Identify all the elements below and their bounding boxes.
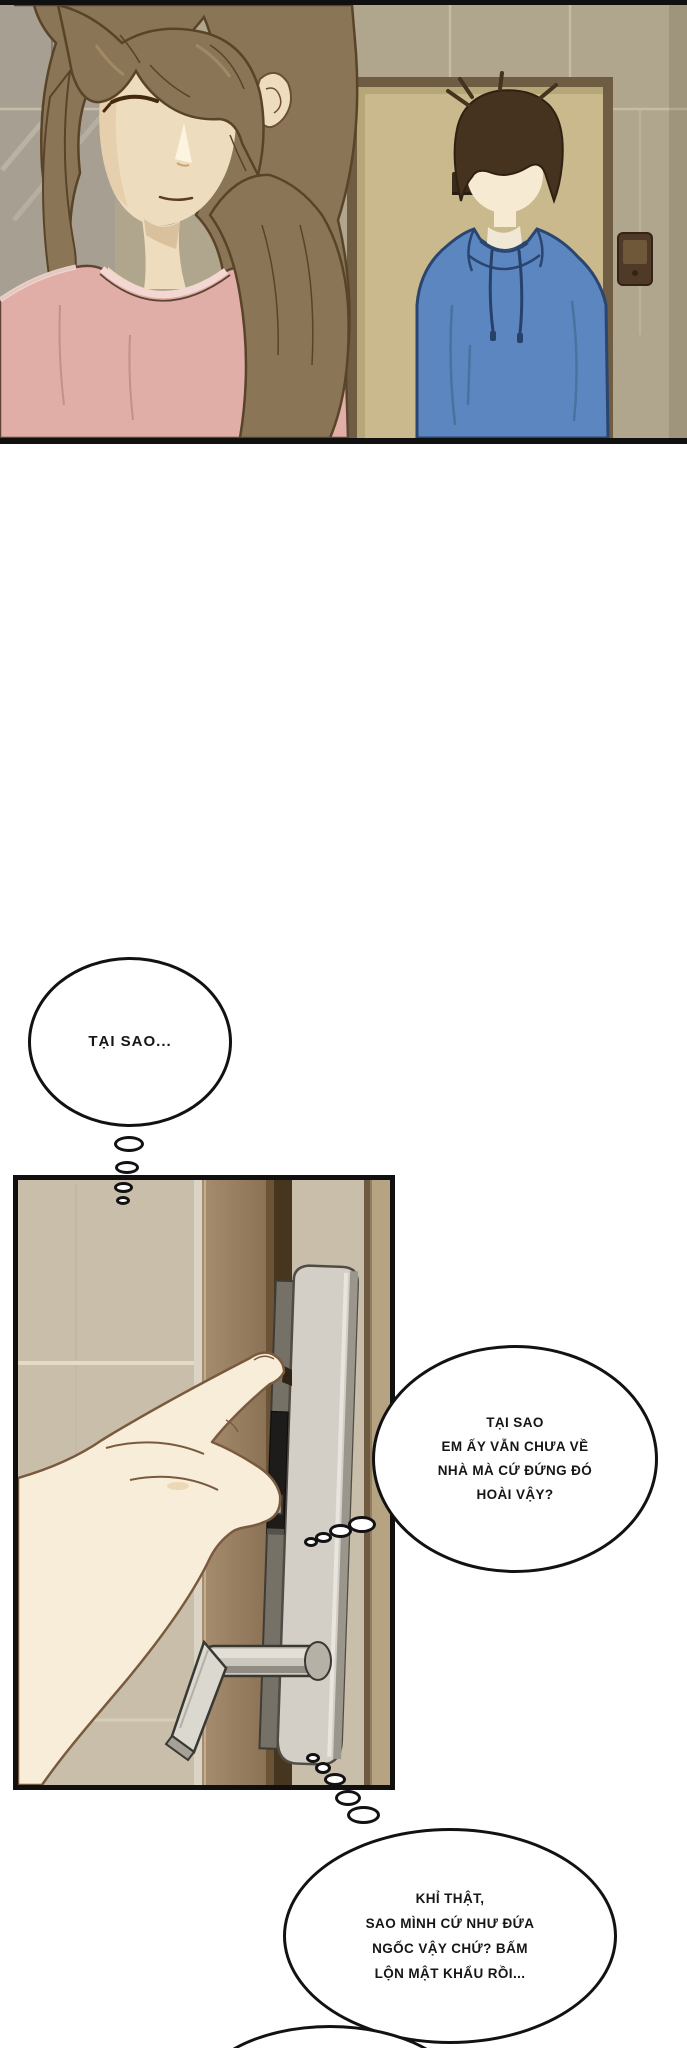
bubble3-line: LỘN MẬT KHẨU RỒI... xyxy=(366,1961,535,1986)
thought-trail-dot xyxy=(335,1790,361,1806)
woman-figure xyxy=(0,5,357,438)
thought-trail-dot xyxy=(348,1516,376,1533)
door-lock-artwork xyxy=(18,1180,390,1785)
thought-trail-dot xyxy=(306,1753,320,1763)
door-jamb xyxy=(364,1180,370,1785)
wall-intercom-icon xyxy=(618,233,652,285)
thought-trail-dot xyxy=(115,1161,139,1174)
lock-slot-bottom xyxy=(267,1528,284,1535)
bubble3-line: KHỈ THẬT, xyxy=(366,1886,535,1911)
wall-vignette xyxy=(669,5,687,438)
thought-bubble-1-text: TẠI SAO... xyxy=(88,1031,171,1053)
drawstring-tip xyxy=(517,333,523,343)
thought-trail-dot xyxy=(347,1806,380,1824)
bubble2-line: NHÀ MÀ CỨ ĐỨNG ĐÓ xyxy=(438,1459,592,1483)
thought-bubble-3-text: KHỈ THẬT, SAO MÌNH CỨ NHƯ ĐỨA NGỐC VẬY C… xyxy=(366,1886,535,1986)
thought-trail-dot xyxy=(116,1196,130,1205)
thought-trail-dot xyxy=(315,1762,331,1774)
webtoon-page: TẠI SAO... TẠI SAO EM ẤY VẪN CHƯA VỀ NHÀ… xyxy=(0,0,687,2048)
thought-bubble-2: TẠI SAO EM ẤY VẪN CHƯA VỀ NHÀ MÀ CỨ ĐỨNG… xyxy=(372,1345,658,1573)
bubble3-line: SAO MÌNH CỨ NHƯ ĐỨA xyxy=(366,1911,535,1936)
thought-trail-dot xyxy=(114,1136,144,1152)
knuckle-shading xyxy=(167,1482,189,1490)
panel-door-lock-scene xyxy=(13,1175,395,1790)
bubble2-line: HOÀI VẬY? xyxy=(438,1483,592,1507)
thought-trail-dot xyxy=(114,1182,133,1193)
thought-bubble-1: TẠI SAO... xyxy=(28,957,232,1127)
hallway-artwork xyxy=(0,5,687,438)
bubble2-line: EM ẤY VẪN CHƯA VỀ xyxy=(438,1435,592,1459)
bubble1-line: TẠI SAO... xyxy=(88,1031,171,1053)
drawstring-tip xyxy=(490,331,496,341)
bubble3-line: NGỐC VẬY CHỨ? BẤM xyxy=(366,1936,535,1961)
bubble2-line: TẠI SAO xyxy=(438,1411,592,1435)
thought-bubble-2-text: TẠI SAO EM ẤY VẪN CHƯA VỀ NHÀ MÀ CỨ ĐỨNG… xyxy=(438,1411,592,1507)
panel-hallway-scene xyxy=(0,0,687,444)
man-hoodie xyxy=(417,229,608,438)
thought-bubble-3: KHỈ THẬT, SAO MÌNH CỨ NHƯ ĐỨA NGỐC VẬY C… xyxy=(283,1828,617,2044)
thought-trail-dot xyxy=(324,1773,346,1786)
